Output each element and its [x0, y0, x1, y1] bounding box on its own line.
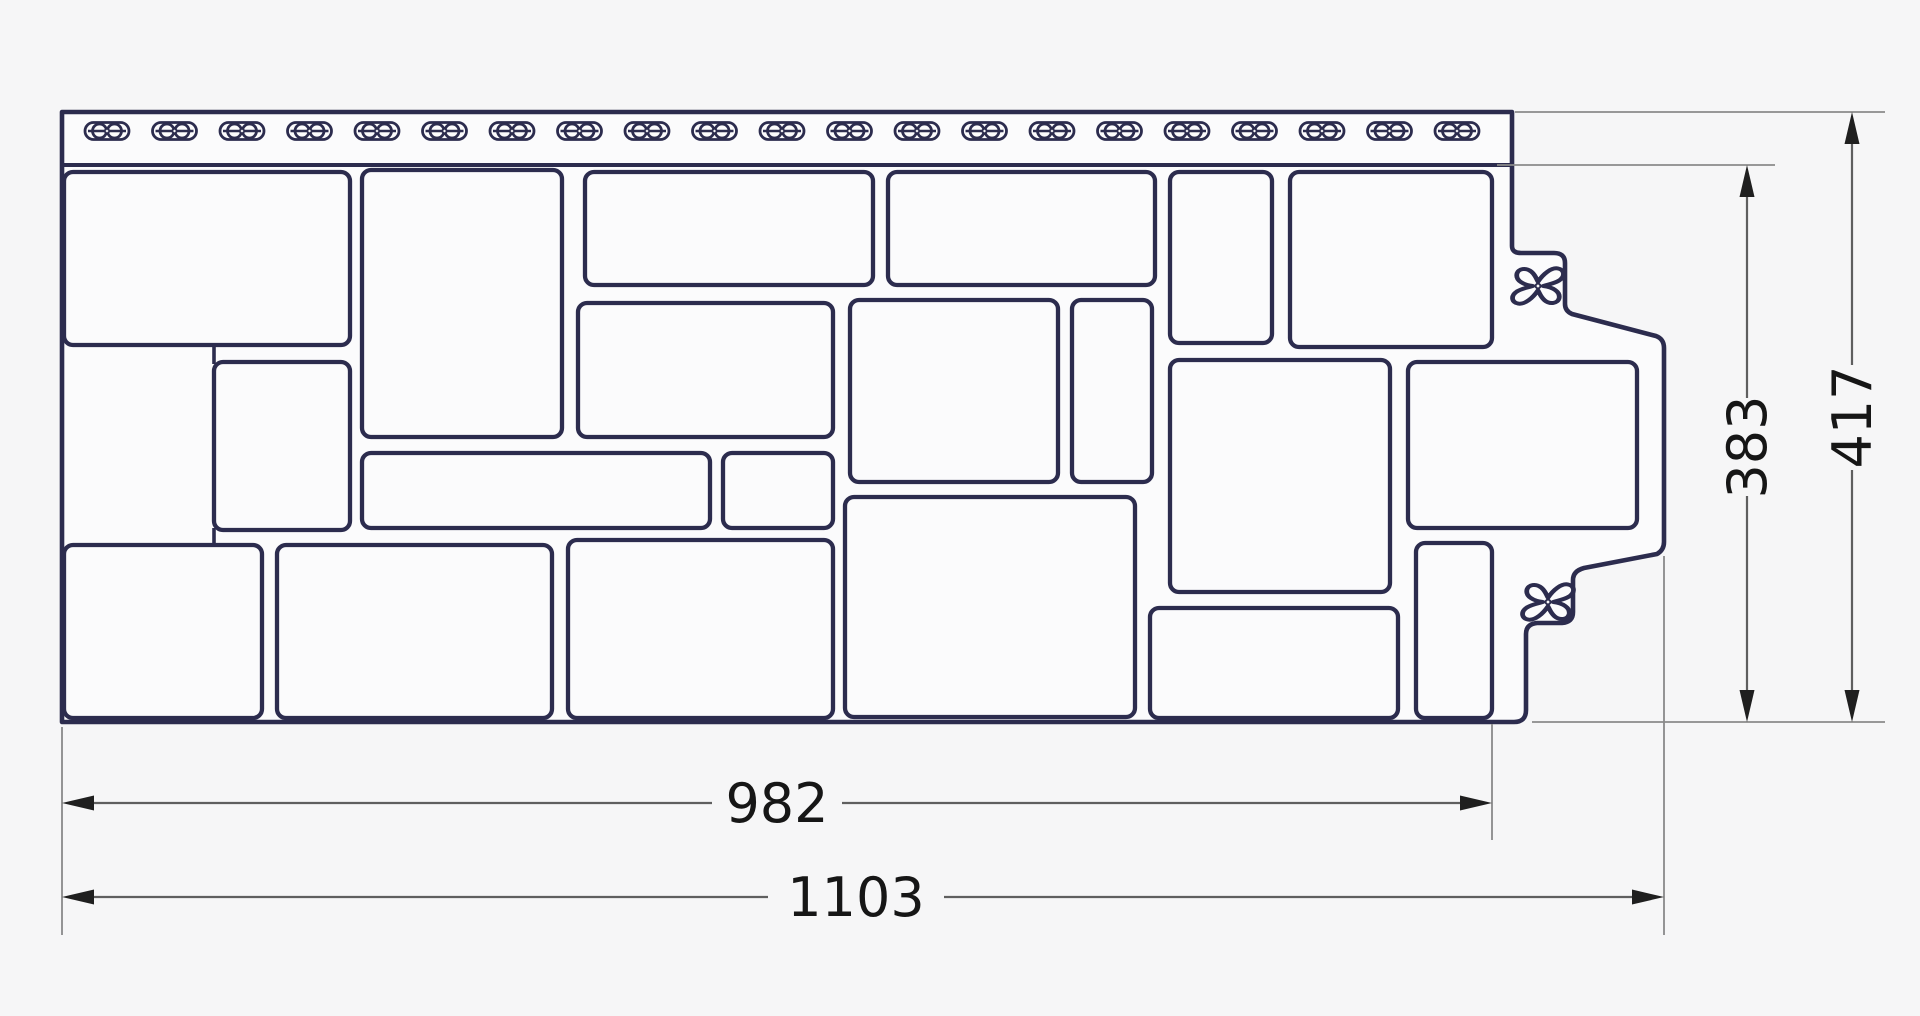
dimension-width-total: 1103	[62, 866, 1664, 929]
stone-block	[578, 303, 833, 437]
dimension-label-383: 383	[1716, 395, 1779, 498]
dimension-label-982: 982	[725, 772, 828, 835]
dimension-label-1103: 1103	[787, 866, 924, 929]
stone-block	[64, 545, 262, 718]
dimension-label-417: 417	[1821, 365, 1884, 468]
stone-block	[362, 170, 562, 437]
stone-block	[568, 540, 833, 718]
stone-block	[64, 172, 350, 345]
stone-block	[723, 453, 833, 528]
stone-block	[1150, 608, 1398, 718]
stone-block	[850, 300, 1058, 482]
dimension-height-inner: 383	[1716, 165, 1779, 722]
stone-block	[1290, 172, 1492, 347]
siding-panel	[62, 112, 1664, 722]
stone-block	[1408, 362, 1637, 528]
stone-block	[888, 172, 1155, 285]
stone-block	[1170, 360, 1390, 592]
stone-block	[845, 497, 1135, 717]
stone-block	[585, 172, 873, 285]
dimension-height-total: 417	[1821, 112, 1884, 722]
stone-block	[1170, 172, 1272, 343]
stone-block	[1416, 543, 1492, 718]
stone-block	[362, 453, 710, 528]
stone-block	[214, 362, 350, 530]
dimension-width-inner: 982	[62, 772, 1492, 835]
drawing-canvas: 982 1103 383 417	[0, 0, 1920, 1016]
stone-block	[1072, 300, 1152, 482]
siding-panel-drawing: 982 1103 383 417	[0, 0, 1920, 1016]
stone-block	[277, 545, 552, 718]
